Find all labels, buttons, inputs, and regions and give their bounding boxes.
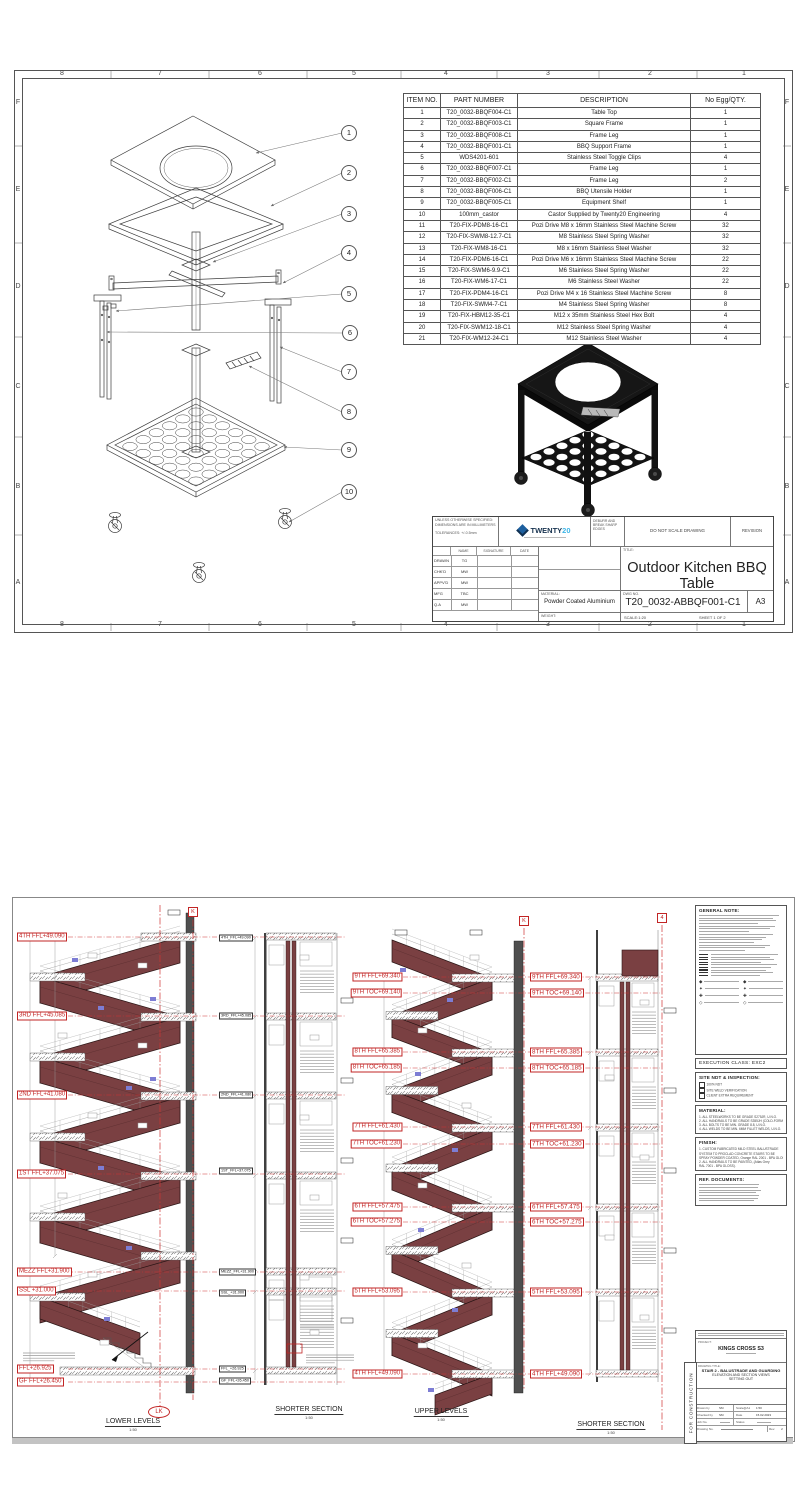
description: Frame Leg — [518, 175, 691, 186]
note-text-line — [699, 1192, 756, 1193]
note-text-line — [699, 1200, 754, 1201]
qty: 4 — [691, 322, 761, 333]
sign-row-mfg: MFGTBC — [433, 589, 538, 600]
qty: 1 — [691, 141, 761, 152]
part-number: T20_0032-BBQF002-C1 — [441, 175, 518, 186]
item-no: 18 — [404, 300, 441, 311]
level-label-upper-left: 9TH TOC+69.140 — [351, 989, 402, 998]
level-label-left: FFL+26.925 — [17, 1365, 54, 1374]
description: M12 Stainless Steel Spring Washer — [518, 322, 691, 333]
qty: 4 — [691, 153, 761, 164]
description: Pozi Drive M8 x 16mm Stainless Steel Mac… — [518, 220, 691, 231]
empty-cell2 — [696, 1389, 786, 1405]
sign-row-chkd: CHK'DMW — [433, 567, 538, 578]
notes-panel: GENERAL NOTE: ◆◆✦✦✚✚◇◇ EXECUTION CLASS: … — [695, 905, 787, 1209]
item-no: 2 — [404, 119, 441, 130]
qty: 1 — [691, 187, 761, 198]
part-number: T20_0032-BBQF008-C1 — [441, 130, 518, 141]
item-no: 5 — [404, 153, 441, 164]
general-note-title: GENERAL NOTE: — [699, 908, 783, 913]
parts-row: 20T20-FIX-SWM12-18-C1M12 Stainless Steel… — [404, 322, 761, 333]
fields-grid: Drawn bySMScale@A11:50 Checked bySMDate1… — [696, 1405, 786, 1432]
balloon-callout-7: 7 — [341, 364, 357, 380]
part-number: T20-FIX-SWM12-18-C1 — [441, 322, 518, 333]
finish-box: FINISH: 1. CUSTOM FABRICATED MILD STEEL … — [695, 1137, 787, 1171]
ndt-box: SITE NDT & INSPECTION: 100% NDT SITE WEL… — [695, 1072, 787, 1102]
page: ITEM NO. PART NUMBER DESCRIPTION No Egg/… — [0, 0, 800, 1500]
parts-row: 1T20_0032-BBQF004-C1Table Top1 — [404, 108, 761, 119]
grid-row-label: D — [781, 283, 793, 291]
legend-row — [699, 972, 783, 973]
level-label-upper-left: 8TH FFL+65.385 — [352, 1048, 402, 1057]
deburr-note: DEBURR AND BREAK SHARP EDGES — [591, 517, 625, 547]
level-label-upper-left: 7TH TOC+61.230 — [351, 1140, 402, 1149]
parts-row: 17T20-FIX-PDM4-16-C1Pozi Drive M4 x 16 S… — [404, 288, 761, 299]
parts-row: 9T20_0032-BBQF005-C1Equipment Shelf1 — [404, 198, 761, 209]
balloon-callout-10: 10 — [341, 484, 357, 500]
finish-title: FINISH: — [699, 1140, 783, 1145]
note-text-line — [699, 931, 749, 932]
project-cell: PROJECT: KINGS CROSS S3 — [696, 1339, 786, 1363]
date-header: DATE — [511, 547, 538, 555]
grid-col-label: 3 — [542, 70, 554, 78]
legend-row — [699, 964, 783, 965]
item-no: 11 — [404, 220, 441, 231]
grid-row-label: B — [781, 483, 793, 491]
title-block: UNLESS OTHERWISE SPECIFIED: DIMENSIONS A… — [432, 516, 774, 622]
level-label-left: 2ND FFL+41.080 — [17, 1091, 67, 1100]
twenty20-logo-icon — [517, 524, 530, 537]
empty-cell — [539, 547, 621, 591]
grid-col-label: 7 — [154, 70, 166, 78]
material-title: MATERIAL: — [699, 1108, 783, 1113]
checkbox-icon — [699, 1093, 705, 1099]
part-number: T20_0032-BBQF004-C1 — [441, 108, 518, 119]
ndt-title: SITE NDT & INSPECTION: — [699, 1075, 783, 1080]
level-label-section: SSL_+31.000 — [219, 1290, 246, 1297]
sheet2-title-block: PROJECT: KINGS CROSS S3 DRAWING TITLE: S… — [695, 1330, 787, 1442]
general-note-box: GENERAL NOTE: ◆◆✦✦✚✚◇◇ — [695, 905, 787, 1055]
drawing-title: Outdoor Kitchen BBQTable — [621, 560, 773, 592]
item-no: 17 — [404, 288, 441, 299]
sheet2-border — [12, 897, 795, 1442]
level-label-upper-right: 6TH FFL+57.475 — [530, 1203, 582, 1212]
revision-strip — [696, 1331, 786, 1339]
level-label-section: FFL_+26.925 — [219, 1366, 246, 1373]
part-number: T20-FIX-SWM8-12.7-C1 — [441, 232, 518, 243]
col-description: DESCRIPTION — [518, 94, 691, 108]
level-label-left: SSL +31.000 — [17, 1287, 56, 1296]
qty: 32 — [691, 232, 761, 243]
item-no: 14 — [404, 254, 441, 265]
weight-cell: WEIGHT: — [539, 613, 621, 621]
qty: 8 — [691, 300, 761, 311]
description: M12 Stainless Steel Washer — [518, 333, 691, 344]
note-text-line — [699, 937, 766, 938]
gridline-marker-4: 4 — [657, 913, 667, 923]
parts-table: ITEM NO. PART NUMBER DESCRIPTION No Egg/… — [403, 93, 761, 345]
grid-col-label: 3 — [542, 621, 554, 629]
note-text-line — [699, 923, 758, 924]
note-text-line — [699, 915, 779, 916]
material-value: Powder Coated Aluminium — [539, 599, 620, 605]
gridline-marker-lk: LK — [148, 1406, 170, 1418]
note-text-line — [699, 928, 770, 929]
company-logo: TWENTY20 — [499, 517, 591, 547]
dwg-no-cell: DWG NO. T20_0032-ABBQF001-C1 A3 — [621, 591, 773, 613]
dwg-no-value: T20_0032-ABBQF001-C1 — [621, 597, 745, 608]
tolerance-line1: UNLESS OTHERWISE SPECIFIED: — [433, 517, 498, 522]
grid-col-label: 2 — [644, 70, 656, 78]
grid-col-label: 8 — [56, 621, 68, 629]
legend-symbol-icon: ◆ — [699, 979, 702, 985]
legend-symbol-icon: ✚ — [699, 993, 703, 999]
material-label: MATERIAL: — [539, 591, 620, 596]
description: M6 Stainless Steel Spring Washer — [518, 266, 691, 277]
grid-col-label: 2 — [644, 621, 656, 629]
title-cell: TITLE: Outdoor Kitchen BBQTable — [621, 547, 773, 591]
note-text-line — [699, 939, 762, 940]
qty: 1 — [691, 119, 761, 130]
note-text-line — [699, 1187, 758, 1188]
qty: 4 — [691, 311, 761, 322]
section-scale: 1:50 — [305, 1415, 313, 1420]
title-label: TITLE: — [621, 547, 773, 552]
level-label-upper-left: 6TH FFL+57.475 — [352, 1203, 402, 1212]
qty: 22 — [691, 266, 761, 277]
note-text-line — [699, 1195, 759, 1196]
signature-header: NAME SIGNATURE DATE — [433, 547, 538, 556]
part-number: T20_0032-BBQF006-C1 — [441, 187, 518, 198]
note-text-line — [699, 945, 770, 946]
parts-row: 21T20-FIX-WM12-24-C1M12 Stainless Steel … — [404, 333, 761, 344]
level-label-upper-left: 6TH TOC+57.275 — [351, 1218, 402, 1227]
grid-row-label: C — [781, 383, 793, 391]
material-cell: MATERIAL: Powder Coated Aluminium — [539, 591, 621, 613]
balloon-callout-5: 5 — [341, 286, 357, 302]
note-text-line — [699, 942, 754, 943]
sign-row-appvd: APPV'DMW — [433, 578, 538, 589]
description: BBQ Utensile Holder — [518, 187, 691, 198]
level-label-upper-left: 9TH FFL+69.340 — [352, 973, 402, 982]
description: M8 Stainless Steel Spring Washer — [518, 232, 691, 243]
for-construction-stamp: FOR CONSTRUCTION — [684, 1362, 697, 1444]
part-number: T20-FIX-WM6-17-C1 — [441, 277, 518, 288]
drawing-title-line3: SETTING OUT — [698, 1377, 784, 1381]
parts-row: 10100mm_castorCastor Supplied by Twenty2… — [404, 209, 761, 220]
paper-size: A3 — [747, 591, 773, 613]
parts-row: 4T20_0032-BBQF001-C1BBQ Support Frame1 — [404, 141, 761, 152]
legend-symbol-icon: ✚ — [743, 993, 747, 999]
grid-col-label: 6 — [254, 70, 266, 78]
ref-documents-box: REF. DOCUMENTS: — [695, 1174, 787, 1206]
grid-row-label: B — [12, 483, 24, 491]
legend-symbol-icon: ✦ — [743, 986, 747, 992]
parts-table-header: ITEM NO. PART NUMBER DESCRIPTION No Egg/… — [404, 94, 761, 108]
grid-row-label: E — [781, 186, 793, 194]
section-title: LOWER LEVELS — [105, 1418, 161, 1427]
item-no: 6 — [404, 164, 441, 175]
grid-row-label: D — [12, 283, 24, 291]
parts-row: 13T20-FIX-WM8-16-C1M8 x 16mm Stainless S… — [404, 243, 761, 254]
execution-class: EXECUTION CLASS: EXC2 — [699, 1061, 783, 1066]
grid-col-label: 5 — [348, 621, 360, 629]
grid-col-label: 4 — [440, 621, 452, 629]
part-number: T20-FIX-PDM8-16-C1 — [441, 220, 518, 231]
note-text-line — [699, 934, 773, 935]
grid-row-label: A — [781, 579, 793, 587]
grid-row-label: F — [12, 99, 24, 107]
qty: 1 — [691, 108, 761, 119]
grid-col-label: 6 — [254, 621, 266, 629]
level-label-upper-right: 8TH TOC+65.185 — [530, 1064, 584, 1073]
signature-table: NAME SIGNATURE DATE DRAWNTG CHK'DMW APPV… — [433, 547, 539, 621]
note-text-line — [699, 947, 765, 948]
balloon-callout-4: 4 — [341, 245, 357, 261]
item-no: 21 — [404, 333, 441, 344]
level-label-upper-right: 9TH TOC+69.140 — [530, 989, 584, 998]
level-label-left: GF FFL+26.450 — [17, 1378, 64, 1387]
parts-row: 3T20_0032-BBQF008-C1Frame Leg1 — [404, 130, 761, 141]
section-title: UPPER LEVELS — [414, 1408, 469, 1417]
legend-symbol-icon: ◇ — [743, 1000, 746, 1006]
item-no: 15 — [404, 266, 441, 277]
level-label-upper-left: 7TH FFL+61.430 — [352, 1123, 402, 1132]
legend-symbol-row: ◆◆ — [699, 979, 783, 985]
logo-text: TWENTY — [530, 526, 562, 535]
balloon-callout-8: 8 — [341, 404, 357, 420]
weight-label: WEIGHT: — [539, 613, 620, 618]
sheet-number: SHEET 1 OF 2 — [699, 615, 726, 620]
description: Equipment Shelf — [518, 198, 691, 209]
balloon-callout-3: 3 — [341, 206, 357, 222]
logo-text-accent: 20 — [562, 526, 570, 535]
qty: 32 — [691, 220, 761, 231]
grid-row-label: C — [12, 383, 24, 391]
grid-row-label: A — [12, 579, 24, 587]
description: BBQ Support Frame — [518, 141, 691, 152]
qty: 4 — [691, 209, 761, 220]
legend-row — [699, 959, 783, 960]
parts-row: 6T20_0032-BBQF007-C1Frame Leg1 — [404, 164, 761, 175]
legend-symbol-icon: ◇ — [699, 1000, 702, 1006]
description: M6 Stainless Steel Washer — [518, 277, 691, 288]
item-no: 9 — [404, 198, 441, 209]
qty: 32 — [691, 243, 761, 254]
legend-symbol-row: ✚✚ — [699, 993, 783, 999]
qty: 1 — [691, 130, 761, 141]
grid-row-label: F — [781, 99, 793, 107]
do-not-scale-note: DO NOT SCALE DRAWING — [625, 517, 731, 547]
col-qty: No Egg/QTY. — [691, 94, 761, 108]
item-no: 4 — [404, 141, 441, 152]
name-header: NAME — [451, 547, 477, 555]
description: Pozi Drive M4 x 16 Stainless Steel Machi… — [518, 288, 691, 299]
item-no: 16 — [404, 277, 441, 288]
description: M4 Stainless Steel Spring Washer — [518, 300, 691, 311]
legend-row — [699, 954, 783, 955]
description: Frame Leg — [518, 164, 691, 175]
item-no: 19 — [404, 311, 441, 322]
signature-header-label: SIGNATURE — [477, 547, 511, 555]
parts-row: 19T20-FIX-HBM12-35-C1M12 x 35mm Stainles… — [404, 311, 761, 322]
grid-col-label: 7 — [154, 621, 166, 629]
item-no: 12 — [404, 232, 441, 243]
part-number: T20_0032-BBQF007-C1 — [441, 164, 518, 175]
part-number: T20-FIX-HBM12-35-C1 — [441, 311, 518, 322]
grid-col-label: 4 — [440, 70, 452, 78]
project-name: KINGS CROSS S3 — [698, 1346, 784, 1352]
level-label-upper-right: 6TH TOC+57.275 — [530, 1218, 584, 1227]
material-box: MATERIAL: 1. ALL STEELWORKS TO BE GRADE … — [695, 1105, 787, 1135]
col-item-no: ITEM NO. — [404, 94, 441, 108]
project-label: PROJECT: — [698, 1340, 784, 1344]
tolerance-line2: DIMENSIONS ARE IN MILLIMETERS — [433, 522, 498, 527]
part-number: T20_0032-BBQF001-C1 — [441, 141, 518, 152]
description: Pozi Drive M6 x 16mm Stainless Steel Mac… — [518, 254, 691, 265]
balloon-callout-6: 6 — [342, 325, 358, 341]
level-label-upper-right: 7TH FFL+61.430 — [530, 1123, 582, 1132]
item-no: 1 — [404, 108, 441, 119]
drawing-title-cell: DRAWING TITLE: STAIR 2 - BALUSTRADE AND … — [696, 1363, 786, 1389]
item-no: 3 — [404, 130, 441, 141]
section-scale: 1:50 — [607, 1430, 615, 1435]
qty: 1 — [691, 164, 761, 175]
description: Stainless Steel Toggle Clips — [518, 153, 691, 164]
tolerance-line3: TOLERANCES: +/-0.5mm — [433, 530, 498, 535]
level-label-left: 1ST FFL+37.075 — [17, 1170, 66, 1179]
part-number: T20_0032-BBQF005-C1 — [441, 198, 518, 209]
level-label-upper-right: 8TH FFL+65.385 — [530, 1048, 582, 1057]
level-label-section: MEZZ_FFL+31.900 — [219, 1269, 256, 1276]
execution-class-box: EXECUTION CLASS: EXC2 — [695, 1058, 787, 1069]
part-number: T20-FIX-PDM4-16-C1 — [441, 288, 518, 299]
tolerance-note: UNLESS OTHERWISE SPECIFIED: DIMENSIONS A… — [433, 517, 499, 547]
legend-symbol-icon: ◆ — [743, 979, 746, 985]
level-label-upper-right: 5TH FFL+53.095 — [530, 1288, 582, 1297]
level-label-left: 4TH FFL+49.090 — [17, 933, 67, 942]
level-label-upper-left: 4TH FFL+49.090 — [352, 1370, 402, 1379]
grid-col-label: 8 — [56, 70, 68, 78]
note-text-line — [699, 1184, 759, 1185]
revision-label: REVISION — [731, 517, 773, 547]
qty: 8 — [691, 288, 761, 299]
level-label-upper-right: 4TH FFL+49.090 — [530, 1370, 582, 1379]
parts-row: 11T20-FIX-PDM8-16-C1Pozi Drive M8 x 16mm… — [404, 220, 761, 231]
note-text-line — [699, 918, 773, 919]
description: Castor Supplied by Twenty20 Engineering — [518, 209, 691, 220]
sign-row-qa: Q.AMW — [433, 600, 538, 611]
section-scale: 1:50 — [129, 1427, 137, 1432]
level-label-section: 4TH_FFL+49.090 — [219, 935, 253, 942]
parts-row: 18T20-FIX-SWM4-7-C1M4 Stainless Steel Sp… — [404, 300, 761, 311]
grid-col-label: 1 — [738, 70, 750, 78]
level-label-section: 2ND_FFL+41.080 — [219, 1092, 253, 1099]
qty: 1 — [691, 198, 761, 209]
description: M8 x 16mm Stainless Steel Washer — [518, 243, 691, 254]
description: Table Top — [518, 108, 691, 119]
level-label-left: 3RD FFL+45.085 — [17, 1012, 67, 1021]
part-number: WDS4201-601 — [441, 153, 518, 164]
part-number: T20-FIX-SWM4-7-C1 — [441, 300, 518, 311]
parts-row: 8T20_0032-BBQF006-C1BBQ Utensile Holder1 — [404, 187, 761, 198]
item-no: 7 — [404, 175, 441, 186]
item-no: 13 — [404, 243, 441, 254]
item-no: 20 — [404, 322, 441, 333]
legend-row — [699, 969, 783, 970]
qty: 4 — [691, 333, 761, 344]
legend-symbol-row: ◇◇ — [699, 1000, 783, 1006]
level-label-upper-right: 7TH TOC+61.230 — [530, 1140, 584, 1149]
item-no: 8 — [404, 187, 441, 198]
grid-row-label: E — [12, 186, 24, 194]
legend-row — [699, 975, 783, 976]
part-number: T20-FIX-WM12-24-C1 — [441, 333, 518, 344]
grid-col-label: 5 — [348, 70, 360, 78]
part-number: T20-FIX-PDM6-16-C1 — [441, 254, 518, 265]
sheet2-bottom-band — [12, 1437, 793, 1444]
note-text-line — [699, 926, 775, 927]
description: Frame Leg — [518, 130, 691, 141]
qty: 2 — [691, 175, 761, 186]
section-scale: 1:50 — [437, 1417, 445, 1422]
note-text-line — [699, 1198, 758, 1199]
section-title: SHORTER SECTION — [274, 1406, 343, 1415]
item-no: 10 — [404, 209, 441, 220]
level-label-upper-right: 9TH FFL+69.340 — [530, 973, 582, 982]
note-text-line — [699, 1190, 761, 1191]
parts-row: 16T20-FIX-WM6-17-C1M6 Stainless Steel Wa… — [404, 277, 761, 288]
part-number: T20_0032-BBQF003-C1 — [441, 119, 518, 130]
legend-row — [699, 962, 783, 963]
parts-row: 12T20-FIX-SWM8-12.7-C1M8 Stainless Steel… — [404, 232, 761, 243]
balloon-callout-2: 2 — [341, 165, 357, 181]
grid-col-label: 1 — [738, 621, 750, 629]
part-number: T20-FIX-WM8-16-C1 — [441, 243, 518, 254]
level-label-section: GF_FFL+26.450 — [219, 1378, 251, 1385]
col-part-number: PART NUMBER — [441, 94, 518, 108]
note-text-line — [699, 950, 745, 951]
legend-symbol-row: ✦✦ — [699, 986, 783, 992]
balloon-callout-9: 9 — [341, 442, 357, 458]
parts-row: 5WDS4201-601Stainless Steel Toggle Clips… — [404, 153, 761, 164]
parts-row: 7T20_0032-BBQF002-C1Frame Leg2 — [404, 175, 761, 186]
level-label-section: 3RD_FFL+45.085 — [219, 1013, 253, 1020]
balloon-callout-1: 1 — [341, 125, 357, 141]
gridline-marker-k1: K — [188, 907, 198, 917]
scale-row: SCALE:1:20 SHEET 1 OF 2 — [621, 613, 773, 621]
part-number: T20-FIX-SWM6-9.9-C1 — [441, 266, 518, 277]
qty: 22 — [691, 277, 761, 288]
qty: 22 — [691, 254, 761, 265]
sign-row-drawn: DRAWNTG — [433, 556, 538, 567]
parts-row: 2T20_0032-BBQF003-C1Square Frame1 — [404, 119, 761, 130]
level-label-upper-left: 8TH TOC+65.185 — [351, 1064, 402, 1073]
legend-row — [699, 967, 783, 968]
parts-row: 15T20-FIX-SWM6-9.9-C1M6 Stainless Steel … — [404, 266, 761, 277]
legend-symbol-icon: ✦ — [699, 986, 703, 992]
ref-documents-title: REF. DOCUMENTS: — [699, 1177, 783, 1182]
gridline-marker-k2: K — [519, 916, 529, 926]
legend-row — [699, 957, 783, 958]
scale-value: SCALE:1:20 — [624, 615, 646, 620]
parts-row: 14T20-FIX-PDM6-16-C1Pozi Drive M6 x 16mm… — [404, 254, 761, 265]
level-label-upper-left: 5TH FFL+53.095 — [352, 1288, 402, 1297]
part-number: 100mm_castor — [441, 209, 518, 220]
section-title: SHORTER SECTION — [576, 1421, 645, 1430]
level-label-left: MEZZ FFL+31.900 — [17, 1268, 72, 1277]
note-text-line — [699, 920, 776, 921]
